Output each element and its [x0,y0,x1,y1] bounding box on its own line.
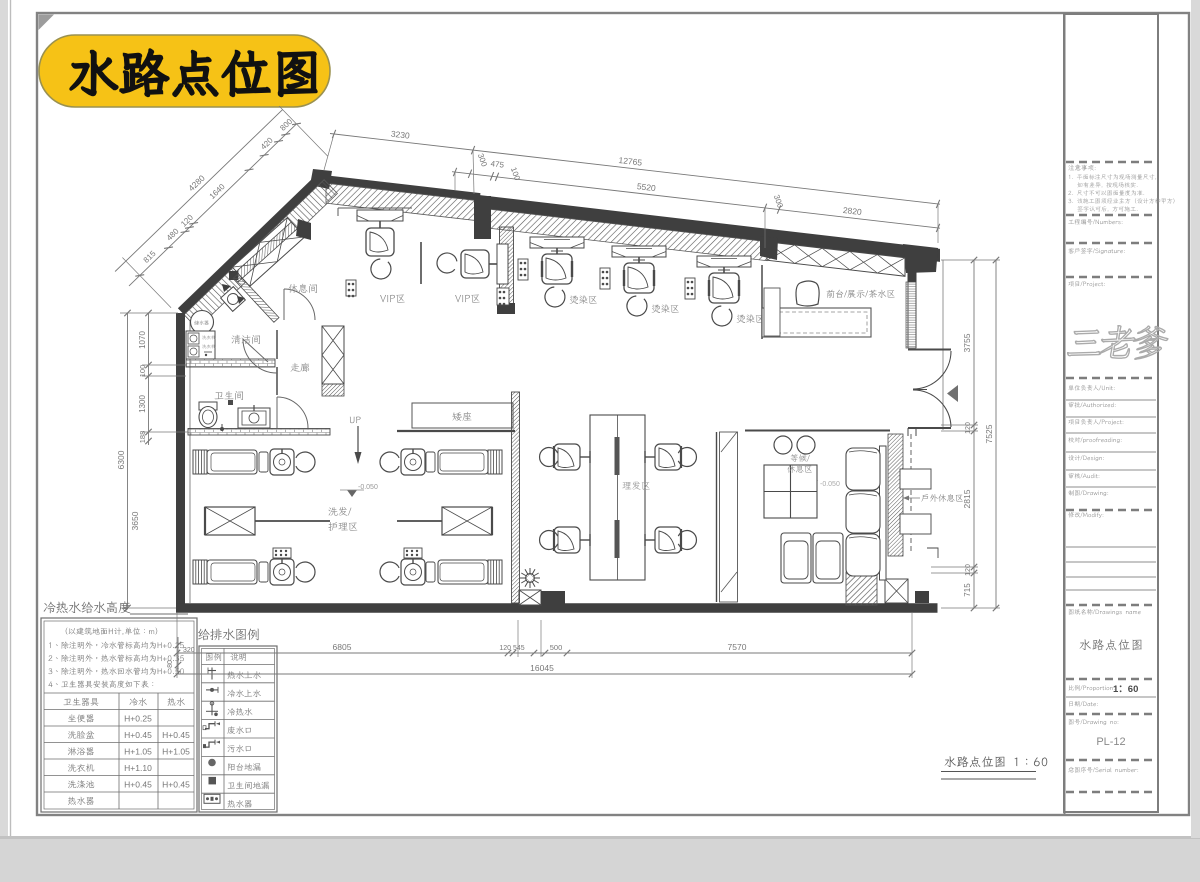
svg-text:1：60: 1：60 [1113,684,1138,695]
svg-text:6805: 6805 [333,642,352,652]
svg-text:H+1.05: H+1.05 [124,747,152,757]
svg-text:PL-12: PL-12 [1096,736,1125,748]
svg-text:H+0.45: H+0.45 [162,780,190,790]
svg-text:H+0.45: H+0.45 [124,730,152,740]
svg-text:H+1.05: H+1.05 [162,747,190,757]
svg-text:120 545: 120 545 [499,645,524,652]
svg-text:16045: 16045 [530,663,554,673]
svg-text:188: 188 [138,431,147,444]
svg-text:100: 100 [138,365,147,378]
svg-text:500: 500 [550,643,563,652]
svg-text:6300: 6300 [116,450,126,469]
svg-text:7525: 7525 [984,424,994,443]
svg-text:7570: 7570 [728,642,747,652]
svg-text:3755: 3755 [962,333,972,352]
svg-text:H+0.45: H+0.45 [162,730,190,740]
svg-text:-0.050: -0.050 [358,484,378,491]
svg-text:120: 120 [965,564,972,576]
svg-text:-0.050: -0.050 [820,481,840,488]
svg-text:3650: 3650 [130,511,140,530]
svg-text:H+0.45: H+0.45 [124,780,152,790]
svg-text:1300: 1300 [138,395,147,413]
svg-text:H+0.25: H+0.25 [124,714,152,724]
svg-text:H+1.10: H+1.10 [124,763,152,773]
svg-text:475: 475 [490,159,505,170]
svg-text:2815: 2815 [962,489,972,508]
svg-text:120: 120 [965,422,972,434]
svg-text:715: 715 [963,583,972,597]
svg-text:1070: 1070 [138,331,147,349]
svg-text:80: 80 [167,660,174,668]
